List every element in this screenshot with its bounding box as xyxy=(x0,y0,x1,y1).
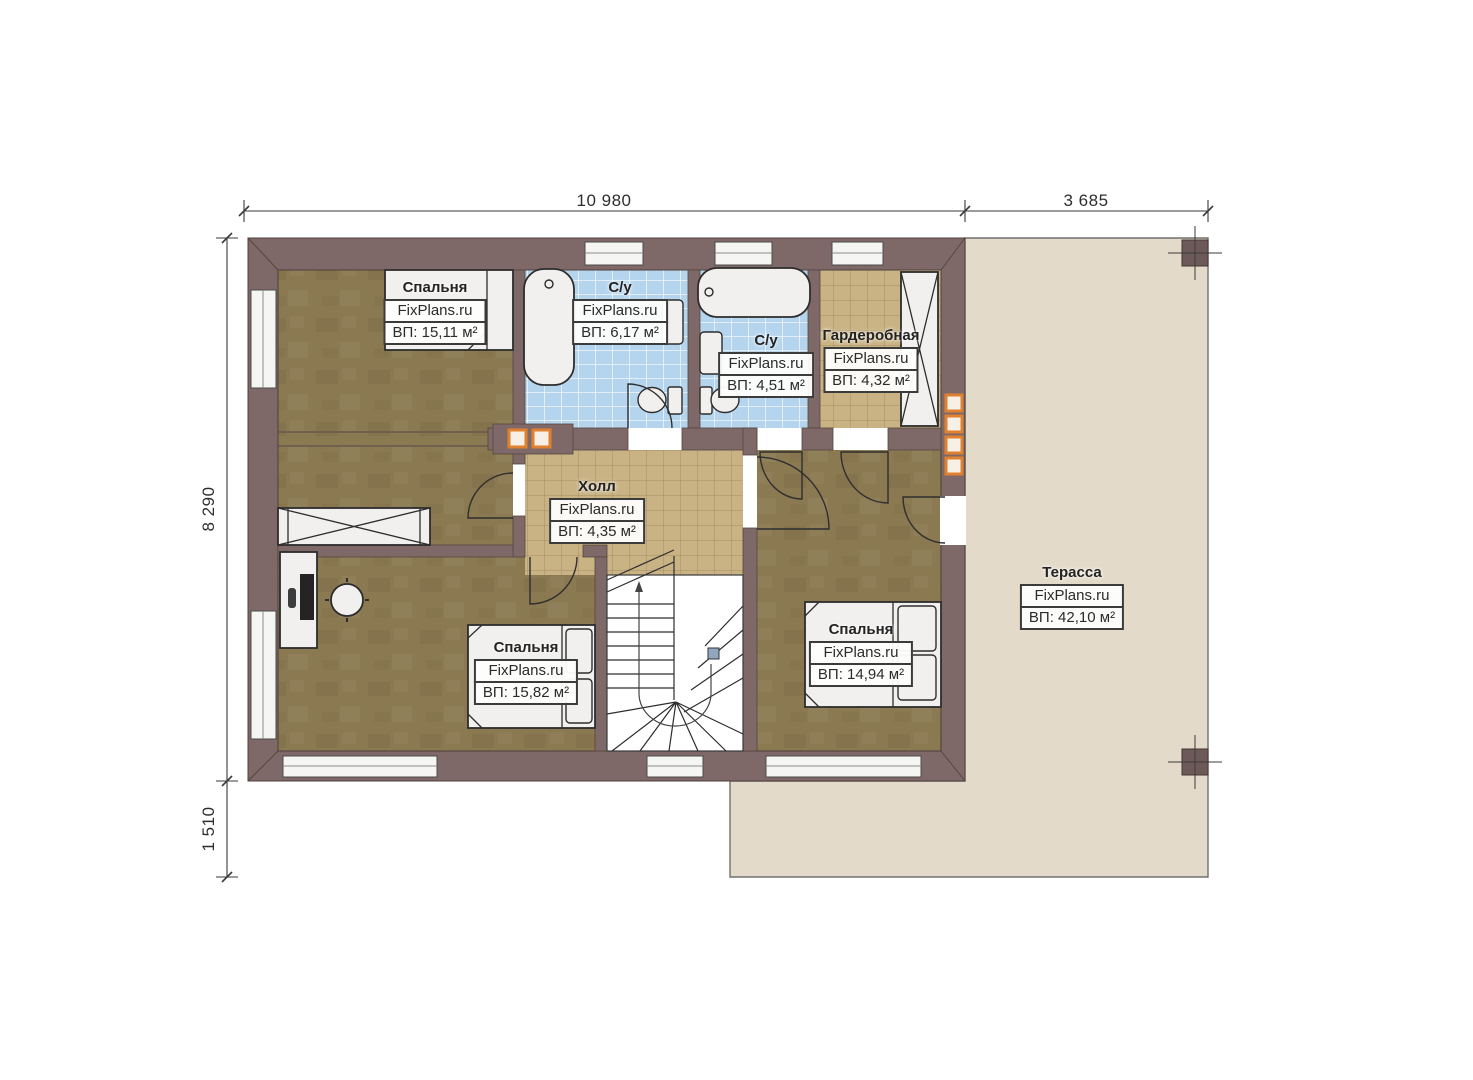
room-name: Терасса xyxy=(1020,564,1124,581)
dimension-left-main: 8 290 xyxy=(199,486,219,531)
room-area: ВП: 15,82 м² xyxy=(474,681,578,705)
room-label-bathroom-middle: С/у FixPlans.ru ВП: 4,51 м² xyxy=(718,332,814,398)
room-name: Гардеробная xyxy=(822,327,919,344)
watermark: FixPlans.ru xyxy=(474,659,578,683)
terrace-door-opening xyxy=(940,496,966,545)
watermark: FixPlans.ru xyxy=(809,641,913,665)
room-label-bedroom-bottom-right: Спальня FixPlans.ru ВП: 14,94 м² xyxy=(809,621,913,687)
dimension-left-terrace: 1 510 xyxy=(199,806,219,851)
room-name: С/у xyxy=(718,332,814,349)
staircase xyxy=(607,550,743,751)
closet-top-left xyxy=(278,508,430,545)
room-label-bathroom-top: С/у FixPlans.ru ВП: 6,17 м² xyxy=(572,279,668,345)
room-name: Спальня xyxy=(383,279,486,296)
room-label-bedroom-bottom-left: Спальня FixPlans.ru ВП: 15,82 м² xyxy=(474,639,578,705)
bathtub-middle xyxy=(698,268,810,317)
room-label-terrace: Терасса FixPlans.ru ВП: 42,10 м² xyxy=(1020,564,1124,630)
room-label-bedroom-top-left: Спальня FixPlans.ru ВП: 15,11 м² xyxy=(383,279,486,345)
watermark: FixPlans.ru xyxy=(1020,584,1124,608)
dimension-lines-left xyxy=(216,233,238,882)
room-name: Спальня xyxy=(809,621,913,638)
watermark: FixPlans.ru xyxy=(383,299,486,323)
dimension-top-terrace: 3 685 xyxy=(1063,191,1108,211)
room-area: ВП: 4,51 м² xyxy=(718,374,814,398)
room-area: ВП: 14,94 м² xyxy=(809,663,913,687)
desk xyxy=(280,552,317,648)
room-area: ВП: 4,32 м² xyxy=(823,369,919,393)
room-label-wardrobe: Гардеробная FixPlans.ru ВП: 4,32 м² xyxy=(822,327,919,393)
watermark: FixPlans.ru xyxy=(718,352,814,376)
room-name: Спальня xyxy=(474,639,578,656)
room-area: ВП: 42,10 м² xyxy=(1020,606,1124,630)
room-label-hall: Холл FixPlans.ru ВП: 4,35 м² xyxy=(549,478,645,544)
stair-post xyxy=(708,648,719,659)
monitor-icon xyxy=(300,574,314,620)
dimension-top-main: 10 980 xyxy=(577,191,632,211)
room-name: Холл xyxy=(549,478,645,495)
room-area: ВП: 6,17 м² xyxy=(572,321,668,345)
room-area: ВП: 15,11 м² xyxy=(383,321,486,345)
watermark: FixPlans.ru xyxy=(823,347,919,371)
room-area: ВП: 4,35 м² xyxy=(549,520,645,544)
floor-plan-page: 10 980 3 685 8 290 1 510 Спальня FixPlan… xyxy=(0,0,1473,1080)
bathtub-top xyxy=(524,269,574,385)
room-name: С/у xyxy=(572,279,668,296)
floor-plan-canvas xyxy=(0,0,1473,1080)
toilet-bathroom-top xyxy=(638,387,682,414)
watermark: FixPlans.ru xyxy=(572,299,668,323)
watermark: FixPlans.ru xyxy=(549,498,645,522)
